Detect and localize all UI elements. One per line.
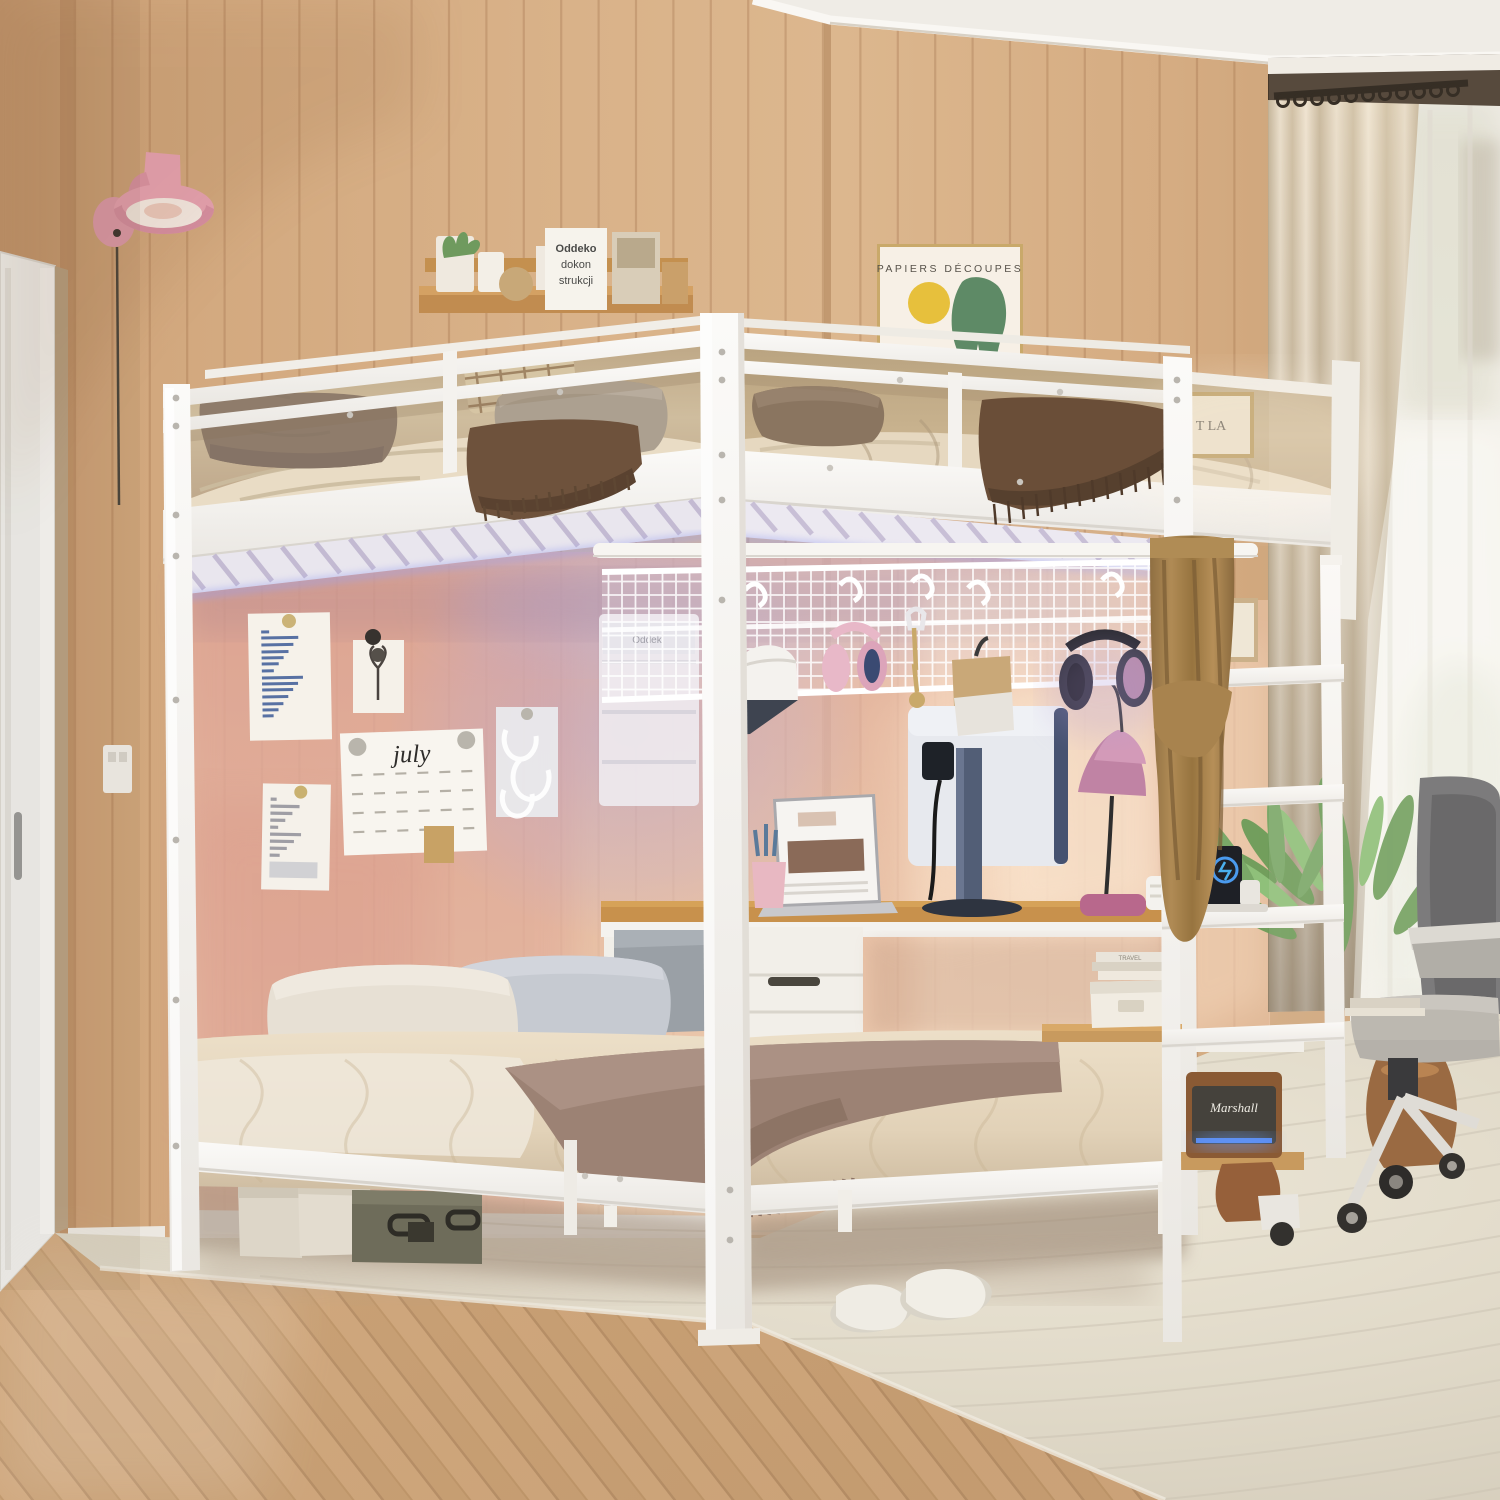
svg-text:Oddeko: Oddeko: [556, 243, 597, 255]
svg-text:TRAVEL: TRAVEL: [1119, 956, 1143, 962]
svg-text:dokon: dokon: [561, 259, 591, 271]
svg-text:july: july: [389, 740, 431, 768]
svg-text:PAPIERS DÉCOUPES: PAPIERS DÉCOUPES: [877, 262, 1024, 275]
svg-text:Marshall: Marshall: [1209, 1100, 1258, 1115]
svg-text:strukcji: strukcji: [559, 275, 593, 287]
